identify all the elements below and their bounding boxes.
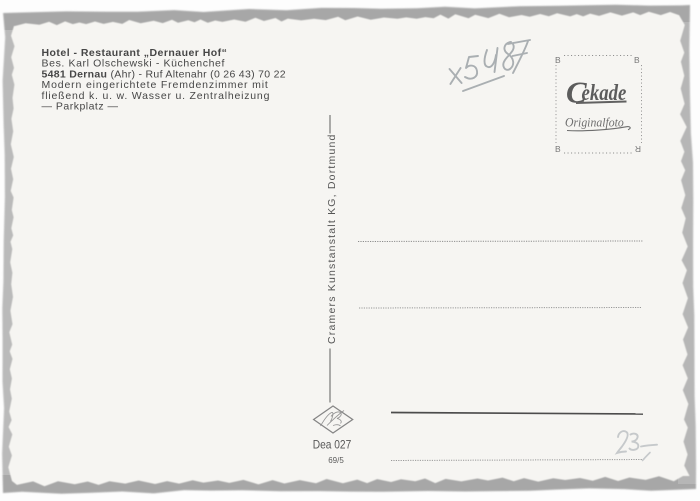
svg-text:Originalfoto: Originalfoto xyxy=(565,115,624,129)
svg-text:B: B xyxy=(555,144,561,154)
svg-text:Cramers Kunstanstalt KG, Dortm: Cramers Kunstanstalt KG, Dortmund xyxy=(326,133,338,344)
svg-text:Dea 027: Dea 027 xyxy=(313,439,352,452)
svg-text:69/5: 69/5 xyxy=(328,456,344,465)
svg-text:R: R xyxy=(635,144,641,154)
svg-text:— Parkplatz —: — Parkplatz — xyxy=(42,101,119,113)
svg-text:B: B xyxy=(555,55,561,65)
svg-text:B: B xyxy=(634,55,640,65)
